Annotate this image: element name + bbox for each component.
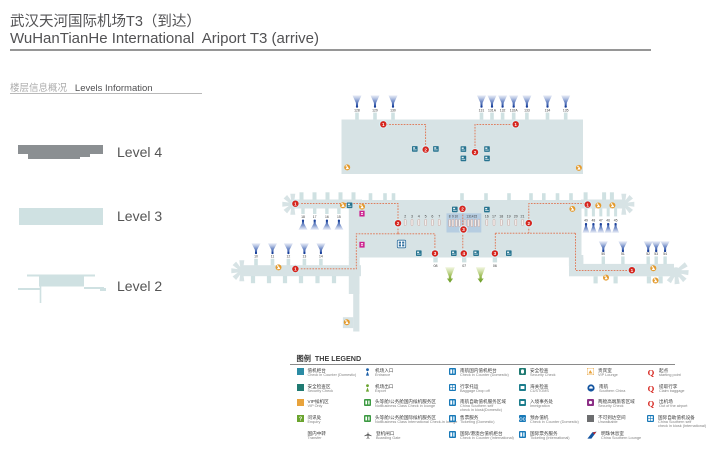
svg-text:52: 52 (646, 252, 650, 256)
svg-text:2: 2 (404, 214, 406, 218)
svg-text:11: 11 (271, 255, 275, 259)
svg-text:10: 10 (455, 214, 459, 218)
svg-text:1: 1 (382, 122, 385, 127)
svg-text:07: 07 (462, 264, 466, 268)
svg-text:133: 133 (524, 108, 530, 112)
svg-text:49: 49 (584, 218, 588, 222)
svg-text:3: 3 (411, 214, 413, 218)
svg-text:50: 50 (601, 252, 605, 256)
svg-text:3: 3 (434, 251, 437, 256)
svg-text:Q: Q (648, 368, 655, 377)
svg-text:1: 1 (586, 202, 589, 207)
svg-text:CC: CC (519, 417, 526, 422)
svg-text:19: 19 (507, 214, 511, 218)
svg-text:4: 4 (418, 214, 420, 218)
svg-text:Q: Q (648, 399, 655, 408)
svg-text:131: 131 (479, 108, 485, 112)
svg-text:130: 130 (390, 108, 396, 112)
svg-text:132: 132 (500, 108, 506, 112)
svg-text:3: 3 (494, 251, 497, 256)
svg-text:18: 18 (499, 214, 503, 218)
svg-text:129: 129 (372, 108, 378, 112)
svg-text:4: 4 (463, 251, 466, 256)
svg-text:12: 12 (287, 255, 291, 259)
svg-text:Q: Q (648, 384, 655, 393)
svg-text:1: 1 (631, 268, 634, 273)
svg-text:3: 3 (462, 227, 465, 232)
svg-text:132A: 132A (510, 108, 519, 112)
svg-text:15: 15 (474, 214, 478, 218)
svg-text:135: 135 (563, 108, 569, 112)
svg-text:47: 47 (599, 218, 603, 222)
svg-text:5: 5 (425, 214, 427, 218)
svg-text:16: 16 (485, 214, 489, 218)
svg-text:08: 08 (434, 264, 438, 268)
svg-text:1: 1 (294, 267, 297, 272)
svg-text:06: 06 (493, 264, 497, 268)
svg-text:51: 51 (621, 252, 625, 256)
svg-text:53: 53 (654, 252, 658, 256)
svg-text:54: 54 (663, 252, 667, 256)
svg-text:17: 17 (492, 214, 496, 218)
svg-text:2: 2 (528, 221, 531, 226)
svg-text:46: 46 (606, 218, 610, 222)
svg-text:48: 48 (592, 218, 596, 222)
svg-text:14: 14 (319, 255, 323, 259)
svg-text:16: 16 (325, 215, 329, 219)
svg-text:?: ? (298, 417, 301, 422)
svg-text:45: 45 (614, 218, 618, 222)
svg-text:20: 20 (514, 214, 518, 218)
svg-text:15: 15 (337, 215, 341, 219)
svg-text:2: 2 (397, 221, 400, 226)
svg-text:13: 13 (303, 255, 307, 259)
svg-text:10: 10 (254, 255, 258, 259)
svg-text:2: 2 (424, 147, 427, 152)
svg-text:131A: 131A (488, 108, 497, 112)
svg-text:128: 128 (354, 108, 360, 112)
svg-text:2: 2 (474, 150, 477, 155)
svg-text:18: 18 (301, 215, 305, 219)
svg-text:1: 1 (294, 201, 297, 206)
svg-text:17: 17 (313, 215, 317, 219)
svg-text:7: 7 (438, 214, 440, 218)
svg-text:1: 1 (514, 122, 517, 127)
svg-text:8: 8 (449, 214, 451, 218)
svg-text:134: 134 (545, 108, 551, 112)
svg-text:6: 6 (431, 214, 433, 218)
svg-text:2: 2 (461, 207, 464, 212)
svg-text:21: 21 (521, 214, 525, 218)
